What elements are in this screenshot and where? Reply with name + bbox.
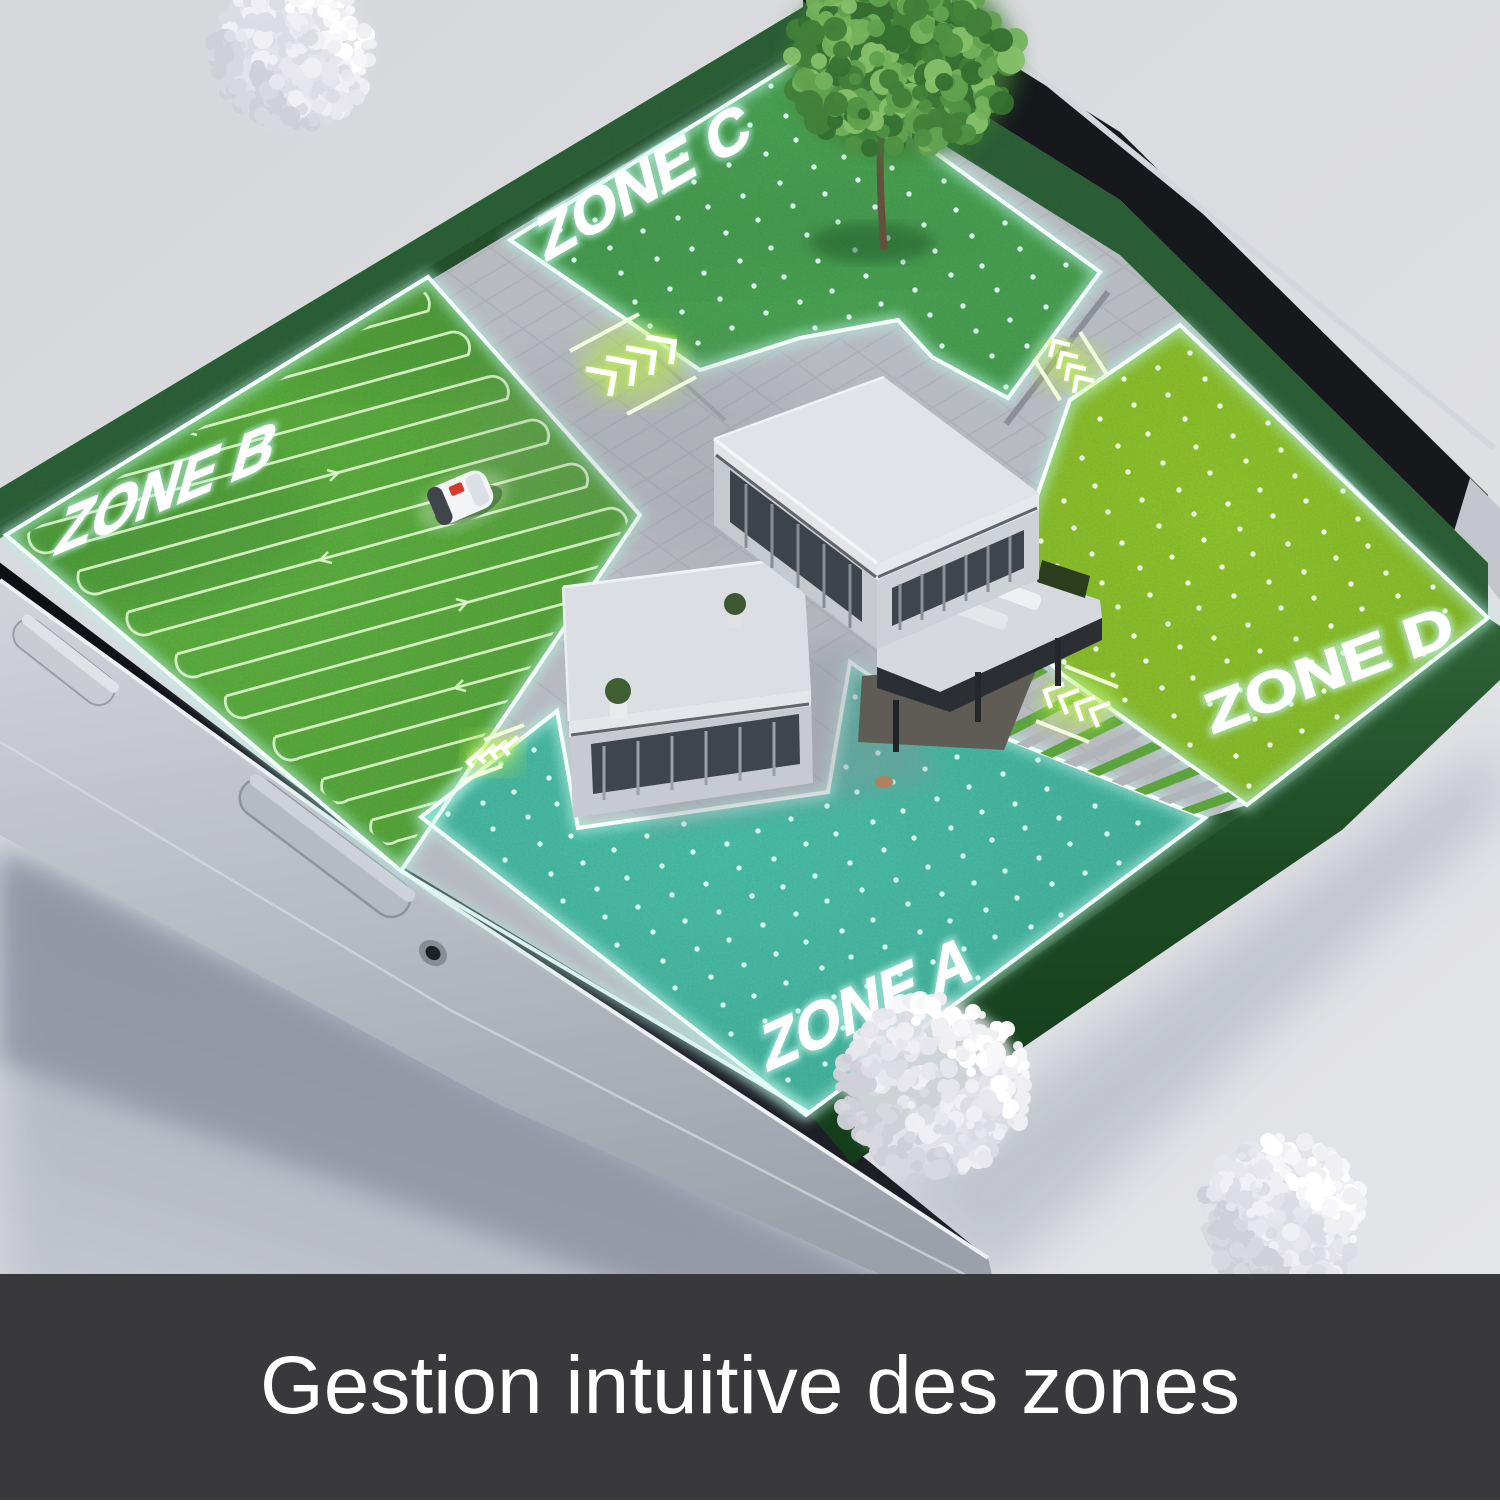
svg-text:Gestion intuitive des zones: Gestion intuitive des zones (260, 1340, 1240, 1431)
